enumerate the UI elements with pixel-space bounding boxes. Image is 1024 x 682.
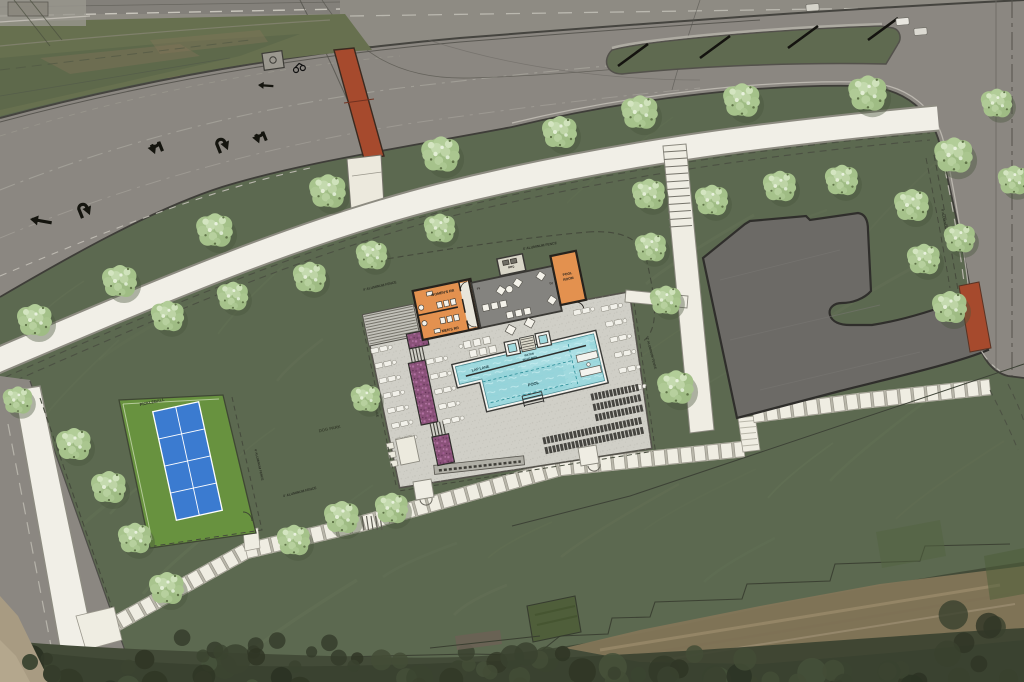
svg-text:TV: TV xyxy=(549,281,554,286)
